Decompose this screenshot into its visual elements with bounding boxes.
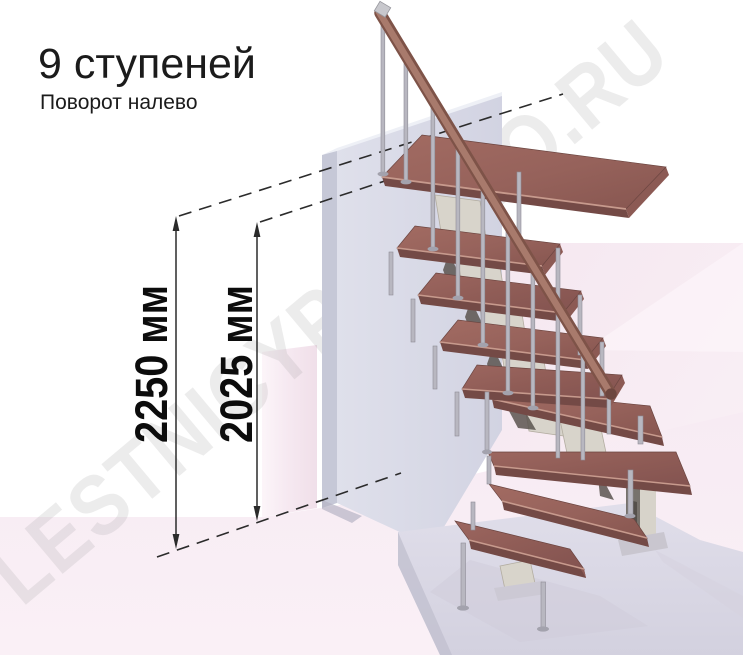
staircase-illustration-page: LESTNICYPROSTO.RU: [0, 0, 743, 655]
handrail-end-cap: [605, 388, 616, 399]
page-title: 9 ступеней: [38, 40, 256, 88]
dimension-label-2250: 2250 мм: [126, 285, 177, 443]
landing-wall-side: [322, 151, 337, 508]
staircase-illustration: LESTNICYPROSTO.RU: [0, 0, 743, 655]
dimension-label-2025: 2025 мм: [211, 285, 262, 443]
page-subtitle: Поворот налево: [40, 91, 198, 114]
